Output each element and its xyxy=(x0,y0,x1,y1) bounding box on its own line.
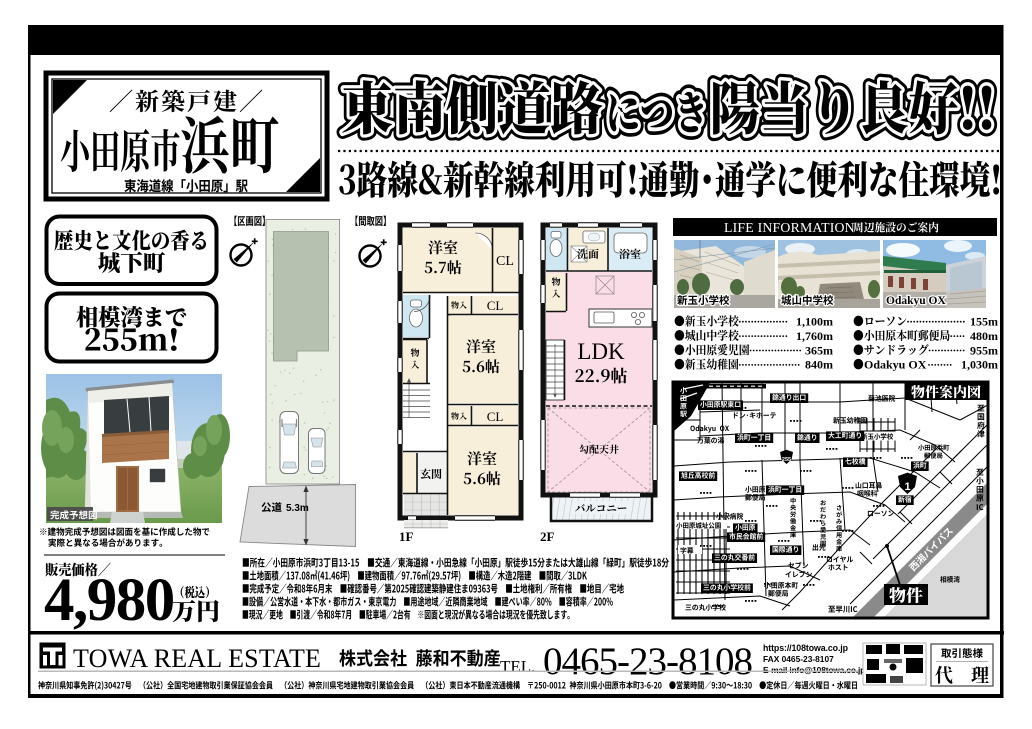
svg-text:5.3m: 5.3m xyxy=(286,503,309,514)
svg-text:840m: 840m xyxy=(805,358,833,372)
svg-text:Odakyu OX: Odakyu OX xyxy=(886,295,946,307)
svg-text:CL: CL xyxy=(487,409,504,424)
svg-text:E-mail info@108towa.co.jp: E-mail info@108towa.co.jp xyxy=(763,665,865,675)
svg-text:CL: CL xyxy=(496,254,514,269)
svg-text:Odakyu OX: Odakyu OX xyxy=(864,358,927,372)
svg-text:155m: 155m xyxy=(970,315,998,329)
svg-text:FAX 0465-23-8107: FAX 0465-23-8107 xyxy=(763,654,834,664)
svg-text:255: 255 xyxy=(782,457,791,463)
svg-text:1,760m: 1,760m xyxy=(796,329,833,343)
svg-text:https://108towa.co.jp: https://108towa.co.jp xyxy=(763,643,849,653)
svg-text:1: 1 xyxy=(904,481,910,493)
svg-text:0465-23-8108: 0465-23-8108 xyxy=(543,640,752,683)
svg-text:1,030m: 1,030m xyxy=(961,358,998,372)
svg-text:4,980: 4,980 xyxy=(44,567,174,634)
svg-text:365m: 365m xyxy=(805,343,833,357)
svg-text:TEL.: TEL. xyxy=(500,657,535,676)
svg-text:480m: 480m xyxy=(970,329,998,343)
svg-text:TOWA REAL ESTATE: TOWA REAL ESTATE xyxy=(73,644,321,673)
svg-text:CL: CL xyxy=(487,298,504,313)
svg-text:2F: 2F xyxy=(540,529,555,544)
svg-text:955m: 955m xyxy=(970,343,998,357)
svg-text:1F: 1F xyxy=(399,529,414,544)
svg-text:LIFE INFORMATION: LIFE INFORMATION xyxy=(724,220,855,235)
svg-text:LDK: LDK xyxy=(577,339,625,364)
svg-text:1,100m: 1,100m xyxy=(796,315,833,329)
